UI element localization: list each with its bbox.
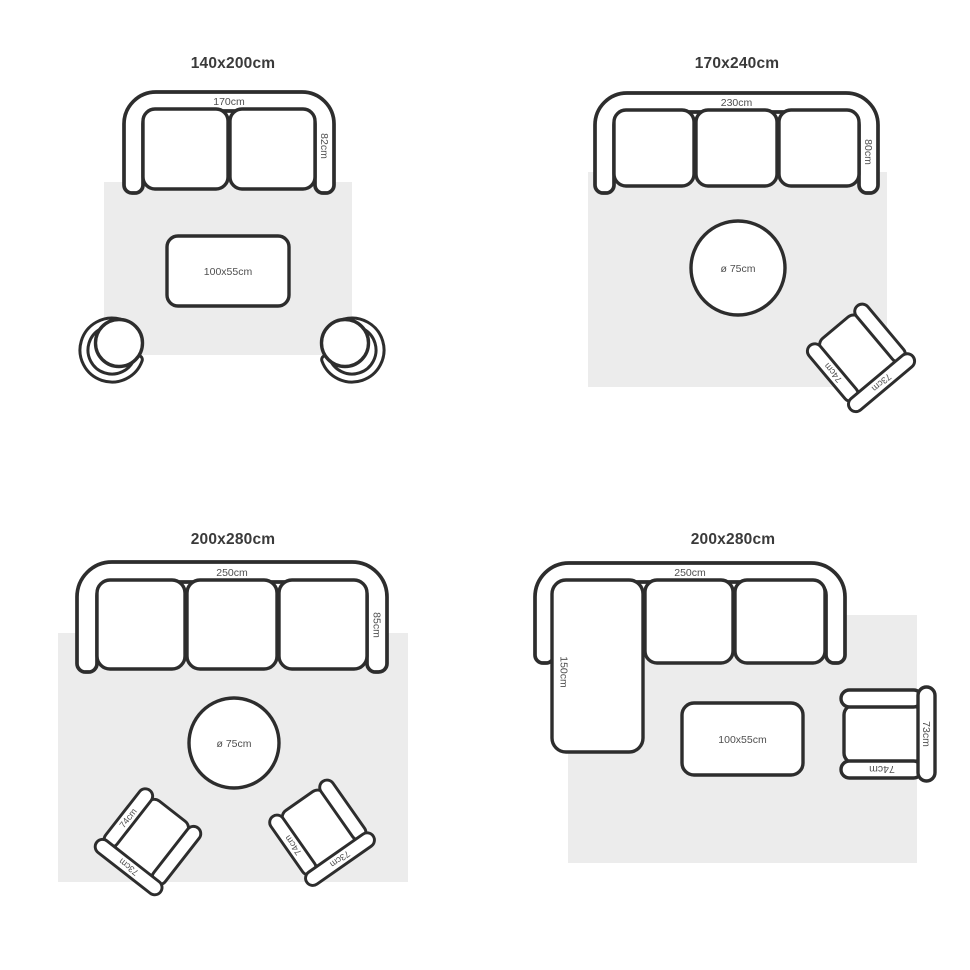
- coffee-table-label: 100x55cm: [204, 266, 253, 278]
- chaise-depth-label-group: 150cm: [558, 656, 570, 688]
- layout-200x280-three-seat: 200x280cm 250cm 85cm ø 75cm 74cm 73cm 74…: [0, 485, 485, 970]
- sofa-width-label: 170cm: [213, 96, 245, 108]
- round-chair-seat: [96, 320, 143, 367]
- round-table-label: ø 75cm: [216, 738, 251, 750]
- sofa-cushion: [645, 580, 733, 663]
- round-table-label: ø 75cm: [720, 263, 755, 275]
- sofa-cushion: [97, 580, 185, 669]
- sofa-depth-label-group: 82cm: [318, 133, 330, 159]
- layout-140x200: 140x200cm 170cm 82cm 100x55cm: [0, 0, 485, 485]
- chaise-depth-label: 150cm: [558, 656, 570, 688]
- sofa-cushion: [187, 580, 277, 669]
- round-chair-seat: [322, 320, 369, 367]
- rug-size-title: 170x240cm: [695, 55, 780, 72]
- round-chair-left: [84, 320, 143, 379]
- armchair-seat: [844, 705, 921, 763]
- rug-size-title: 140x200cm: [191, 55, 276, 72]
- rug-size-title: 200x280cm: [191, 531, 276, 548]
- sofa-cushion: [696, 110, 777, 186]
- round-chair-right: [322, 320, 381, 379]
- armchair-arm-right: [841, 690, 922, 707]
- sofa-depth-label: 85cm: [371, 612, 383, 638]
- armchair-back-label: 73cm: [920, 721, 932, 747]
- armchair: 74cm 73cm: [841, 687, 935, 781]
- sofa-width-label: 250cm: [674, 567, 706, 579]
- sofa-depth-label-group: 80cm: [862, 139, 874, 165]
- layout-200x280-sectional: 200x280cm 250cm 150cm 100x55cm 74cm 73cm: [485, 485, 970, 970]
- rug-size-title: 200x280cm: [691, 531, 776, 548]
- sofa-depth-label: 82cm: [318, 133, 330, 159]
- sofa-depth-label: 80cm: [862, 139, 874, 165]
- sofa-depth-label-group: 85cm: [371, 612, 383, 638]
- sofa-cushion: [735, 580, 825, 663]
- armchair-arm-label: 74cm: [869, 763, 895, 775]
- sofa-cushion: [779, 110, 859, 186]
- sofa-cushion: [143, 109, 228, 189]
- sofa-width-label: 230cm: [721, 97, 753, 109]
- rug-size-guide: 140x200cm 170cm 82cm 100x55cm 170x240cm …: [0, 0, 970, 970]
- coffee-table-label: 100x55cm: [718, 734, 767, 746]
- layout-170x240: 170x240cm 230cm 80cm ø 75cm 74cm 73cm: [485, 0, 970, 485]
- sofa-cushion: [279, 580, 367, 669]
- sofa-cushion: [614, 110, 694, 186]
- sofa-width-label: 250cm: [216, 567, 248, 579]
- sofa-cushion: [230, 109, 315, 189]
